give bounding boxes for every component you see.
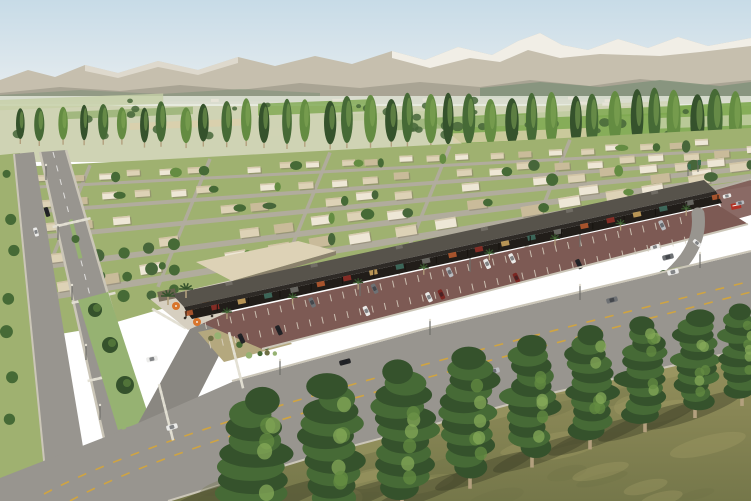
aerial-render [0, 0, 751, 501]
